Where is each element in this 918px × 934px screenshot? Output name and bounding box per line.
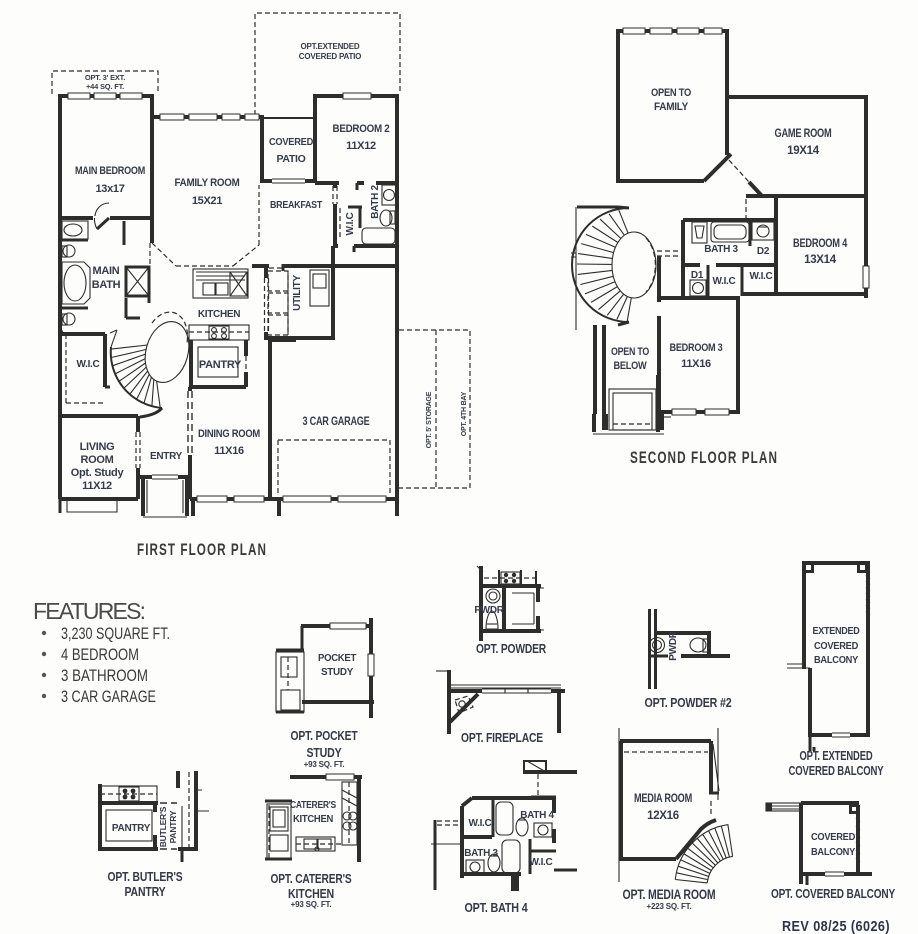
svg-text:+93 SQ. FT.: +93 SQ. FT. [304,760,345,769]
svg-text:SECOND FLOOR PLAN: SECOND FLOOR PLAN [630,449,778,467]
svg-text:3,230 SQUARE FT.: 3,230 SQUARE FT. [61,625,170,643]
svg-text:PANTRY: PANTRY [199,359,242,371]
svg-text:UTILITY: UTILITY [292,275,303,311]
svg-text:15X21: 15X21 [192,195,222,207]
svg-text:MAIN: MAIN [93,265,120,277]
svg-text:Opt. Study: Opt. Study [71,467,125,479]
svg-text:BREAKFAST: BREAKFAST [270,200,322,211]
svg-text:KITCHEN: KITCHEN [198,309,240,320]
svg-text:MEDIA ROOM: MEDIA ROOM [634,793,692,805]
svg-text:+93 SQ. FT.: +93 SQ. FT. [291,900,332,909]
svg-text:3 CAR GARAGE: 3 CAR GARAGE [61,688,156,706]
svg-text:12X16: 12X16 [647,810,679,822]
svg-text:PWDR: PWDR [474,605,504,616]
svg-text:PANTRY: PANTRY [168,810,178,843]
svg-text:BATH 4: BATH 4 [520,810,554,821]
svg-text:OPT.EXTENDED: OPT.EXTENDED [301,42,360,51]
svg-text:GAME ROOM: GAME ROOM [775,128,832,140]
svg-text:MAIN BEDROOM: MAIN BEDROOM [75,165,145,177]
svg-text:BATH 3: BATH 3 [464,848,498,859]
svg-text:OPT. POCKET: OPT. POCKET [291,728,358,743]
svg-text:COVERED BALCONY: COVERED BALCONY [789,763,884,778]
svg-text:W.I.C: W.I.C [345,212,356,235]
svg-text:KITCHEN: KITCHEN [293,814,333,825]
svg-text:OPT. 3' EXT.: OPT. 3' EXT. [85,73,125,82]
svg-text:KITCHEN: KITCHEN [288,886,334,901]
svg-text:COVERED: COVERED [811,832,855,843]
svg-text:BEDROOM 3: BEDROOM 3 [670,342,723,354]
svg-text:EXTENDED: EXTENDED [813,626,860,637]
svg-text:11X16: 11X16 [681,358,711,370]
svg-text:W.I.C: W.I.C [77,359,100,370]
svg-text:D2: D2 [757,246,770,257]
svg-text:3 BATHROOM: 3 BATHROOM [61,667,148,685]
svg-text:3 CAR GARAGE: 3 CAR GARAGE [303,416,370,428]
svg-text:PANTRY: PANTRY [125,884,166,899]
svg-text:PANTRY: PANTRY [112,823,151,834]
svg-text:REV 08/25 (6026): REV 08/25 (6026) [782,918,890,934]
svg-text:BATH 2: BATH 2 [370,184,381,218]
svg-text:W.I.C: W.I.C [713,276,736,287]
svg-text:DINING ROOM: DINING ROOM [198,428,260,440]
svg-text:13x17: 13x17 [95,183,124,195]
svg-text:BALCONY: BALCONY [814,655,859,666]
svg-text:BEDROOM 4: BEDROOM 4 [793,238,848,250]
svg-text:+44 SQ. FT.: +44 SQ. FT. [86,82,124,91]
svg-text:W.I.C: W.I.C [750,271,773,282]
svg-text:FAMILY ROOM: FAMILY ROOM [175,177,240,189]
svg-text:4 BEDROOM: 4 BEDROOM [61,646,139,664]
svg-text:OPT. 5' STORAGE: OPT. 5' STORAGE [426,391,433,448]
svg-text:BEDROOM 2: BEDROOM 2 [333,123,390,135]
svg-text:FIRST FLOOR PLAN: FIRST FLOOR PLAN [137,541,267,559]
svg-text:OPT. COVERED BALCONY: OPT. COVERED BALCONY [771,886,895,901]
svg-text:STUDY: STUDY [307,745,342,760]
svg-text:OPT. BATH 4: OPT. BATH 4 [465,900,529,915]
svg-text:COVERED PATIO: COVERED PATIO [299,52,361,61]
svg-text:PATIO: PATIO [277,154,307,165]
svg-text:COVERED: COVERED [269,137,313,148]
svg-text:11X12: 11X12 [346,140,376,152]
svg-text:+223 SQ. FT.: +223 SQ. FT. [647,902,692,911]
svg-text:11X16: 11X16 [214,445,244,457]
svg-text:FEATURES:: FEATURES: [33,598,146,624]
svg-text:ENTRY: ENTRY [150,451,183,462]
svg-text:11X12: 11X12 [82,480,112,492]
svg-text:LIVING: LIVING [80,441,115,453]
svg-text:W.I.C: W.I.C [530,857,553,868]
svg-text:BATH 3: BATH 3 [704,244,738,255]
svg-text:STUDY: STUDY [321,667,354,678]
svg-text:19X14: 19X14 [787,145,820,157]
svg-text:BATH: BATH [92,279,121,291]
svg-text:OPEN TO: OPEN TO [611,346,650,358]
svg-text:BALCONY: BALCONY [811,847,856,858]
svg-text:OPT. MEDIA ROOM: OPT. MEDIA ROOM [623,887,716,902]
svg-text:BUTLER'S: BUTLER'S [158,806,168,847]
svg-text:POCKET: POCKET [318,653,356,664]
svg-text:ROOM: ROOM [80,454,113,466]
svg-text:D1: D1 [691,270,704,281]
svg-text:OPT. POWDER #2: OPT. POWDER #2 [645,695,732,710]
svg-text:OPEN TO: OPEN TO [651,87,692,99]
svg-text:OPT. BUTLER'S: OPT. BUTLER'S [108,869,183,884]
svg-text:OPT. EXTENDED: OPT. EXTENDED [800,748,873,763]
svg-text:COVERED: COVERED [814,641,858,652]
svg-text:OPT. FIREPLACE: OPT. FIREPLACE [461,730,543,745]
svg-text:BELOW: BELOW [614,360,648,372]
svg-text:OPT. 4TH BAY: OPT. 4TH BAY [461,391,468,436]
svg-text:PWDR: PWDR [668,630,679,660]
svg-text:FAMILY: FAMILY [654,101,689,113]
svg-text:13X14: 13X14 [804,254,837,266]
svg-text:OPT. POWDER: OPT. POWDER [476,641,547,656]
svg-text:OPT. CATERER'S: OPT. CATERER'S [271,871,352,886]
svg-text:W.I.C: W.I.C [469,818,492,829]
svg-text:CATERER'S: CATERER'S [290,800,337,811]
